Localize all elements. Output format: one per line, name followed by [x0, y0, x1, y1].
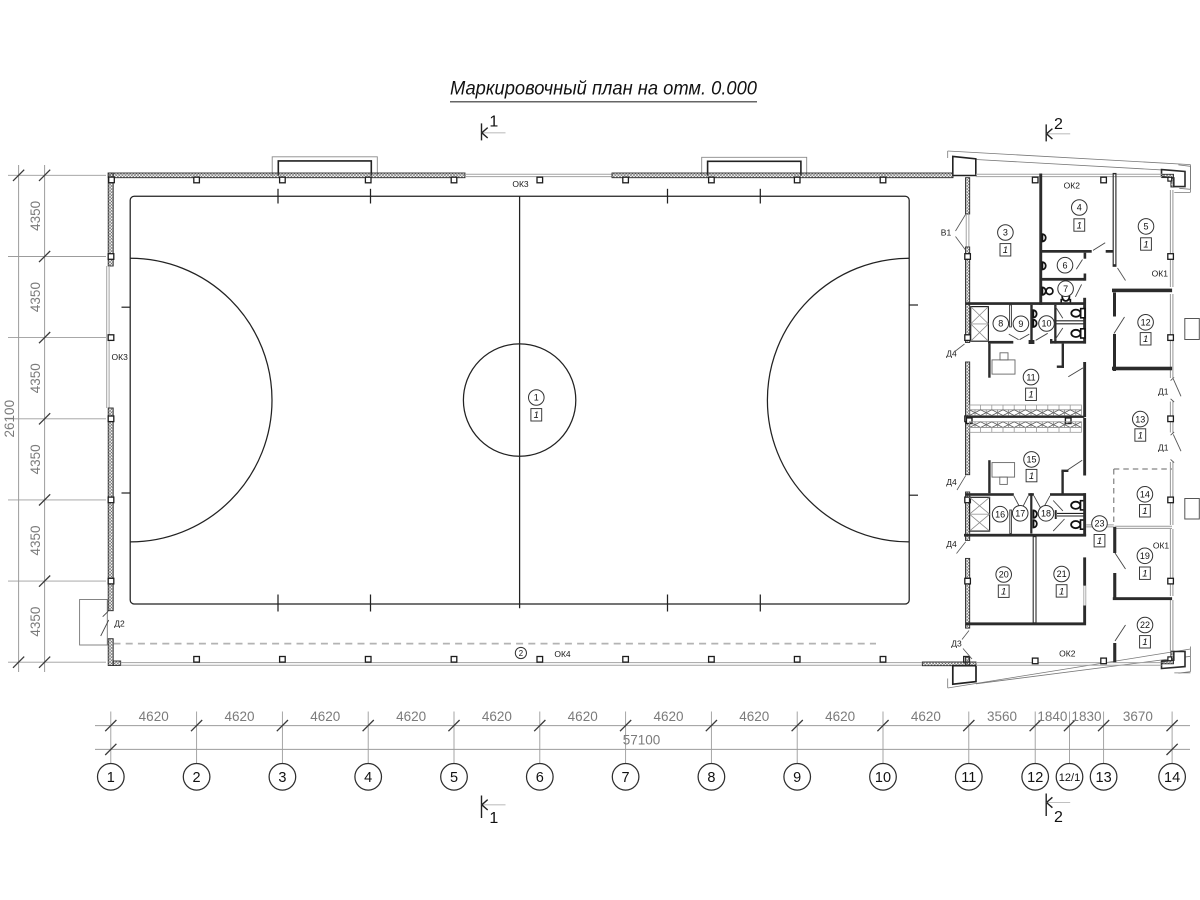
svg-text:18: 18 [1041, 509, 1051, 519]
svg-text:1: 1 [534, 410, 539, 421]
svg-text:8: 8 [707, 770, 715, 786]
svg-text:Д4: Д4 [946, 477, 957, 487]
svg-text:1: 1 [1142, 506, 1147, 517]
svg-text:1: 1 [1077, 220, 1082, 231]
svg-text:4350: 4350 [28, 282, 43, 312]
svg-text:4620: 4620 [482, 709, 512, 724]
svg-text:1: 1 [1138, 430, 1143, 441]
svg-text:1: 1 [1142, 569, 1147, 580]
svg-text:2: 2 [1054, 809, 1063, 826]
svg-text:1: 1 [1142, 637, 1147, 648]
svg-text:16: 16 [995, 509, 1005, 519]
svg-text:ОК2: ОК2 [1059, 649, 1076, 659]
svg-text:4350: 4350 [28, 201, 43, 231]
svg-text:1: 1 [1003, 245, 1008, 256]
svg-text:1: 1 [1143, 334, 1148, 345]
svg-text:4350: 4350 [28, 444, 43, 474]
svg-text:4620: 4620 [653, 709, 683, 724]
svg-text:Маркировочный план на отм. 0.0: Маркировочный план на отм. 0.000 [450, 78, 757, 100]
svg-text:1: 1 [489, 114, 498, 131]
svg-text:4620: 4620 [224, 709, 254, 724]
svg-text:15: 15 [1026, 455, 1036, 465]
svg-text:4620: 4620 [568, 709, 598, 724]
svg-text:6: 6 [1062, 260, 1067, 270]
svg-text:8: 8 [998, 319, 1003, 329]
svg-text:1840: 1840 [1037, 709, 1067, 724]
svg-text:23: 23 [1094, 519, 1104, 529]
svg-text:2: 2 [193, 770, 201, 786]
svg-text:22: 22 [1140, 620, 1150, 630]
svg-text:9: 9 [1018, 319, 1023, 329]
svg-text:1: 1 [489, 810, 498, 827]
svg-text:Д1: Д1 [1158, 443, 1169, 453]
svg-text:7: 7 [622, 770, 630, 786]
svg-text:В1: В1 [941, 228, 952, 238]
svg-text:3: 3 [1003, 228, 1008, 238]
svg-text:4350: 4350 [28, 525, 43, 555]
svg-text:Д1: Д1 [1158, 387, 1169, 397]
svg-text:4: 4 [1077, 203, 1082, 213]
svg-text:ОК1: ОК1 [1153, 541, 1170, 551]
svg-text:11: 11 [961, 770, 976, 786]
svg-text:3560: 3560 [987, 709, 1017, 724]
svg-text:Д3: Д3 [951, 639, 962, 649]
svg-text:57100: 57100 [623, 733, 661, 748]
svg-text:1: 1 [1059, 586, 1064, 597]
svg-text:Д2: Д2 [114, 619, 125, 629]
svg-text:1: 1 [1143, 239, 1148, 250]
svg-text:7: 7 [1063, 284, 1068, 294]
svg-text:21: 21 [1057, 569, 1067, 579]
svg-text:4620: 4620 [396, 709, 426, 724]
svg-text:4620: 4620 [739, 709, 769, 724]
svg-text:1: 1 [107, 770, 115, 786]
svg-text:4350: 4350 [28, 363, 43, 393]
svg-text:13: 13 [1135, 414, 1145, 424]
svg-text:12/1: 12/1 [1059, 772, 1080, 784]
svg-text:Д4: Д4 [946, 349, 957, 359]
svg-text:26100: 26100 [2, 400, 17, 438]
svg-text:2: 2 [519, 649, 523, 658]
svg-text:14: 14 [1164, 770, 1180, 786]
svg-text:12: 12 [1141, 318, 1151, 328]
svg-text:19: 19 [1140, 551, 1150, 561]
svg-text:2: 2 [1054, 116, 1063, 133]
svg-text:ОК2: ОК2 [1064, 181, 1081, 191]
svg-text:4620: 4620 [139, 709, 169, 724]
svg-text:4350: 4350 [28, 607, 43, 637]
svg-text:ОК4: ОК4 [554, 649, 571, 659]
svg-text:3670: 3670 [1123, 709, 1153, 724]
svg-text:17: 17 [1015, 509, 1025, 519]
svg-text:11: 11 [1026, 372, 1035, 382]
svg-text:ОК3: ОК3 [512, 179, 529, 189]
svg-text:4620: 4620 [310, 709, 340, 724]
svg-text:20: 20 [999, 570, 1009, 580]
svg-text:4: 4 [364, 770, 372, 786]
svg-text:3: 3 [278, 770, 286, 786]
svg-text:4620: 4620 [911, 709, 941, 724]
svg-text:1: 1 [1029, 471, 1034, 482]
svg-text:1: 1 [1097, 536, 1102, 547]
svg-text:1830: 1830 [1072, 709, 1102, 724]
svg-text:12: 12 [1027, 770, 1043, 786]
svg-text:10: 10 [1041, 319, 1051, 329]
svg-text:1: 1 [534, 393, 539, 403]
svg-text:1: 1 [1001, 587, 1006, 598]
svg-text:1: 1 [1028, 390, 1033, 401]
svg-text:14: 14 [1140, 490, 1150, 500]
svg-text:10: 10 [875, 770, 891, 786]
svg-text:5: 5 [1143, 222, 1148, 232]
svg-text:5: 5 [450, 770, 458, 786]
svg-text:ОК3: ОК3 [112, 352, 129, 362]
svg-text:Д4: Д4 [946, 539, 957, 549]
svg-text:6: 6 [536, 770, 544, 786]
svg-text:ОК1: ОК1 [1152, 269, 1169, 279]
svg-text:13: 13 [1096, 770, 1112, 786]
svg-text:9: 9 [793, 770, 801, 786]
svg-text:4620: 4620 [825, 709, 855, 724]
